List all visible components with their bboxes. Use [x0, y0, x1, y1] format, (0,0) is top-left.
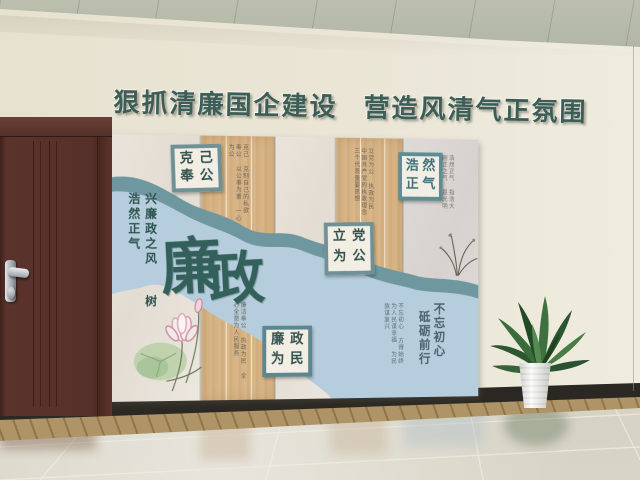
box-char: 浩	[404, 158, 421, 177]
bottom-right-slogan: 不忘初心 砥砺前行	[416, 303, 445, 367]
bottom-slogan-col2: 砥砺前行	[417, 303, 431, 367]
bottom-slogan-col1: 不忘初心	[432, 303, 446, 359]
left-vertical-slogan: 兴廉政之风 树浩然正气	[125, 192, 159, 312]
box-lidang-weigong: 立 党 为 公	[324, 222, 375, 275]
box-char: 民	[287, 351, 306, 371]
box-char: 立	[330, 228, 350, 249]
box-char: 公	[197, 168, 217, 186]
box-keji-fenggong: 克 己 奉 公	[170, 144, 222, 193]
plant-pot	[517, 363, 553, 408]
door-lock-icon	[7, 286, 15, 299]
wall-corner	[633, 46, 634, 391]
box-char: 为	[330, 249, 350, 270]
box-char: 廉	[268, 332, 287, 352]
wooden-door	[0, 117, 112, 416]
orchid-painting	[438, 230, 478, 278]
box-lianzheng-weimin: 廉 政 为 民	[262, 326, 312, 377]
box-char: 政	[287, 331, 306, 351]
box-char: 然	[421, 158, 438, 176]
potted-plant	[488, 290, 592, 410]
box-char: 公	[349, 248, 369, 269]
box-char: 为	[268, 351, 287, 371]
box-haoran-zhengqi: 浩 然 正 气	[398, 152, 442, 201]
note-keji: 克己 克制自己的私欲 奉公 以公事为重 一心为公	[227, 144, 249, 223]
box-char: 己	[196, 150, 216, 168]
door-groove	[49, 141, 57, 407]
lotus-painting	[127, 296, 221, 400]
box-char: 党	[349, 228, 369, 249]
slogan-part2: 营造风清气正氛围	[363, 93, 588, 128]
door-groove	[33, 141, 41, 407]
note-lidang: 立党为公 执政为民 中国共产党的执政理念 三个代表重要思想	[353, 148, 374, 220]
lobby-photo: 狠抓清廉国企建设营造风清气正氛围 廉 政 兴廉政之风 树浩然正气 克 己 奉 公…	[0, 0, 640, 480]
box-char: 气	[421, 176, 438, 194]
door-edge-line	[97, 136, 98, 416]
left-slogan-col1: 兴廉政之风	[144, 192, 158, 267]
lianzheng-culture-wall: 廉 政 兴廉政之风 树浩然正气 克 己 奉 公 克己 克制自己的私欲 奉公 以公…	[107, 134, 478, 402]
door-frame-top	[0, 117, 112, 137]
note-buwang-chuxin: 不忘初心 方得始终 为人民谋幸福 为民族谋复兴	[382, 303, 403, 365]
box-char: 正	[404, 176, 421, 194]
slogan-gap	[337, 116, 363, 117]
box-char: 奉	[177, 168, 197, 186]
box-char: 克	[176, 150, 196, 168]
wall-slogan-header: 狠抓清廉国企建设营造风清气正氛围	[113, 82, 564, 128]
slogan-part1: 狠抓清廉国企建设	[113, 88, 338, 123]
